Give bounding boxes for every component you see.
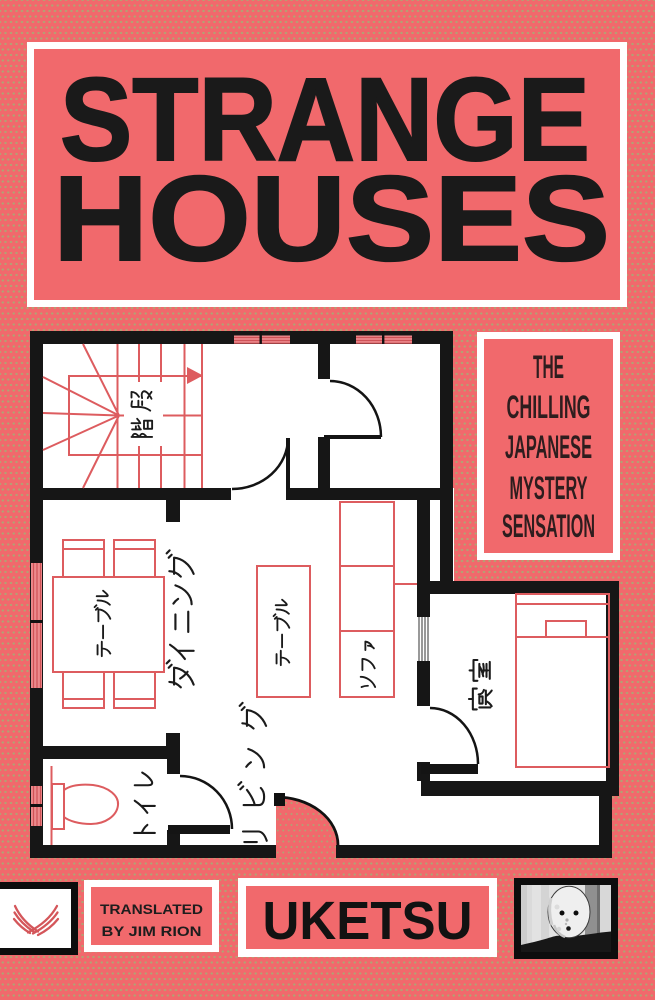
svg-text:UKETSU: UKETSU (263, 891, 473, 949)
svg-text:BY JIM RION: BY JIM RION (102, 924, 202, 939)
svg-text:TRANSLATED: TRANSLATED (100, 902, 203, 917)
